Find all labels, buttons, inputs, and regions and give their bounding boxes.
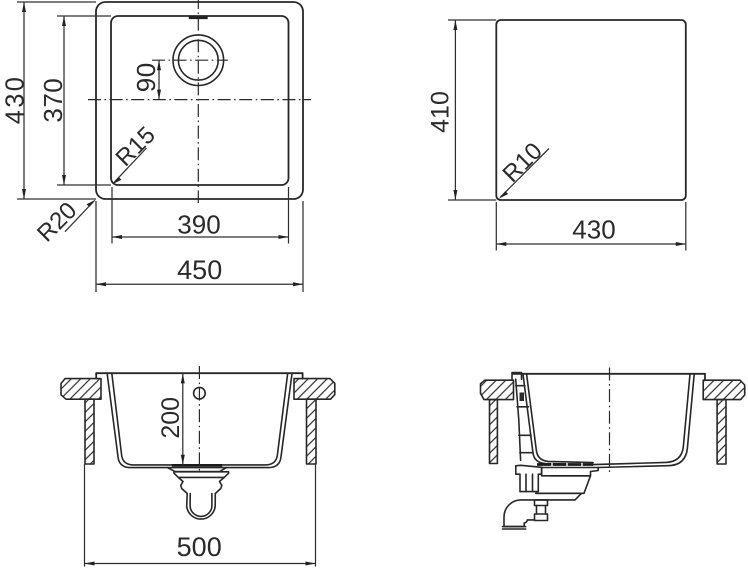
svg-text:430: 430 [1, 75, 29, 124]
svg-text:R15: R15 [111, 122, 161, 172]
svg-text:R20: R20 [32, 197, 82, 247]
svg-text:90: 90 [131, 62, 161, 92]
svg-text:430: 430 [572, 215, 615, 245]
svg-text:450: 450 [177, 255, 222, 285]
svg-text:370: 370 [38, 78, 68, 123]
svg-text:410: 410 [427, 91, 455, 133]
svg-text:200: 200 [157, 397, 185, 439]
svg-text:500: 500 [177, 532, 222, 562]
svg-text:R10: R10 [498, 138, 548, 188]
svg-text:390: 390 [177, 209, 220, 239]
